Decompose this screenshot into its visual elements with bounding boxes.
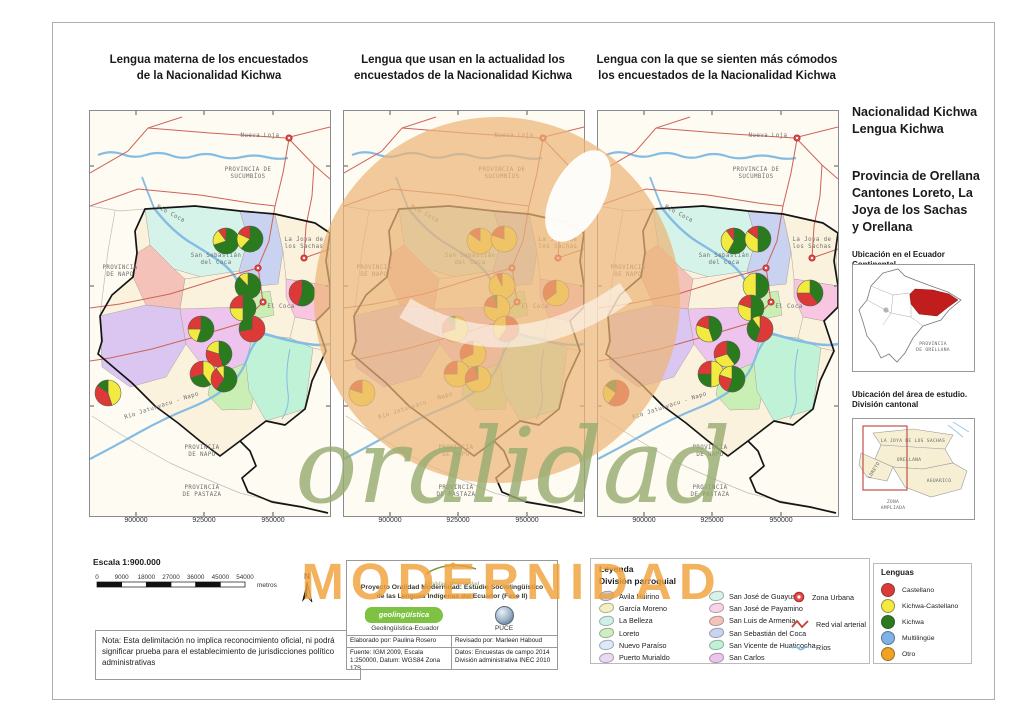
svg-text:PROVINCIA DESUCUMBÍOS: PROVINCIA DESUCUMBÍOS [733,167,780,180]
pie-chart [603,380,629,406]
svg-text:PROVINCIADE PASTAZA: PROVINCIADE PASTAZA [183,485,222,498]
red-vial-legend: Red vial arterial [791,619,866,629]
zona-urbana-label: Zona Urbana [812,593,854,602]
legend-item: La Belleza [599,615,670,627]
map-sheet: Lengua materna de los encuestados de la … [0,0,1024,724]
pie-chart [235,273,261,299]
legend-subtitle: División parroquial [599,576,676,586]
svg-text:PROVINCIADE NAPO: PROVINCIADE NAPO [184,445,219,458]
disclaimer-note: Nota: Esta delimitación no implica recon… [95,630,361,680]
credits-datos: Datos: Encuestas de campo 2014 División … [452,648,557,670]
parish-color-blob [598,652,614,664]
map2-title: Lengua que usan en la actualidad los enc… [320,52,606,84]
legend-item: Loreto [599,627,670,639]
credits-fuente: Fuente: IGM 2009, Escala 1:250000, Datum… [347,648,452,670]
map-panel-lengua-comodos: Nueva LojaPROVINCIA DESUCUMBÍOSRío CocaP… [597,110,839,517]
x-axis-label: 900000 [378,517,401,524]
parish-label: San Carlos [729,653,765,662]
x-axis-label: 925000 [446,517,469,524]
legend-title: Leyenda [599,564,634,574]
svg-text:El Coca: El Coca [775,304,802,310]
parish-color-blob [708,627,724,639]
sidebar-heading: Nacionalidad Kichwa Lengua Kichwa [852,104,1002,138]
map3-title: Lengua con la que se sienten más cómodos… [574,52,860,84]
pie-chart [745,226,771,252]
svg-text:PROVINCIADE PASTAZA: PROVINCIADE PASTAZA [437,485,476,498]
geolinguistica-logo: geolingüísticaecuador [365,607,443,623]
legend-item: Nuevo Paraíso [599,639,670,651]
parish-color-blob [598,590,614,602]
project-title: Proyecto Oralidad Modernidad: Estudio So… [347,583,557,601]
parish-color-blob [708,602,724,614]
svg-text:27000: 27000 [162,574,180,581]
rios-legend: Ríos [791,643,831,652]
parish-color-blob [708,639,724,651]
svg-text:18000: 18000 [138,574,156,581]
pie-chart [442,316,468,342]
svg-text:ORELLANA: ORELLANA [897,457,922,463]
pie-chart [543,280,569,306]
map-panel-lengua-actual: Nueva LojaPROVINCIA DESUCUMBÍOSRío CocaP… [343,110,585,517]
parish-label: García Moreno [619,604,667,613]
parish-color-blob [598,615,614,627]
svg-text:PROVINCIADE PASTAZA: PROVINCIADE PASTAZA [691,485,730,498]
map2-x-axis: 900000925000950000 [344,517,584,529]
svg-text:AGUARICO: AGUARICO [927,478,952,484]
language-color-dot [881,599,895,613]
svg-text:9000: 9000 [115,574,130,581]
north-arrow-icon: N [296,570,320,608]
svg-text:PROVINCIADE ORELLANA: PROVINCIADE ORELLANA [916,341,950,353]
credits-box: Oralidad Modernidad Proyecto Oralidad Mo… [346,560,558,670]
legend-item: San José de Payamino [709,602,816,614]
inset2-title: Ubicación del área de estudio. División … [852,390,987,411]
pie-chart [696,316,722,342]
parish-label: Puerto Murialdo [619,653,670,662]
language-color-dot [881,583,895,597]
x-axis-label: 900000 [632,517,655,524]
language-item: Kichwa [881,614,958,630]
svg-text:LA JOYA DE LOS SACHAS: LA JOYA DE LOS SACHAS [881,438,945,444]
pie-chart [719,366,745,392]
parish-color-blob [598,627,614,639]
pie-chart [211,366,237,392]
legend-item: García Moreno [599,602,670,614]
rios-label: Ríos [816,643,831,652]
pie-chart [213,228,239,254]
parish-color-blob [708,590,724,602]
svg-text:PROVINCIA DESUCUMBÍOS: PROVINCIA DESUCUMBÍOS [225,167,272,180]
rios-icon [791,644,809,652]
zona-urbana-icon [793,591,805,603]
red-vial-icon [791,619,809,629]
parish-label: San José de Guayusa [729,592,800,601]
parish-color-blob [708,615,724,627]
language-item: Multilingüe [881,630,958,646]
svg-text:PROVINCIADE NAPO: PROVINCIADE NAPO [692,445,727,458]
credits-elaborado: Elaborado por: Paulina Rosero [347,636,452,648]
languages-legend-box: Lenguas CastellanoKichwa-CastellanoKichw… [873,563,972,664]
language-item: Kichwa-Castellano [881,598,958,614]
pie-chart [743,273,769,299]
language-label: Castellano [902,587,934,594]
language-label: Multilingüe [902,635,935,642]
svg-text:metros: metros [257,582,278,589]
legend-item: Puerto Murialdo [599,651,670,663]
geolinguistica-caption: Geolingüística-Ecuador [355,625,455,632]
map-canvas-lengua-materna: Nueva LojaPROVINCIA DESUCUMBÍOSRío CocaP… [90,111,330,516]
parish-label: La Belleza [619,616,653,625]
svg-text:Nueva Loja: Nueva Loja [495,133,534,139]
language-label: Kichwa [902,619,924,626]
svg-text:0: 0 [95,574,99,581]
legend-item: San Carlos [709,651,816,663]
svg-text:PROVINCIA DESUCUMBÍOS: PROVINCIA DESUCUMBÍOS [479,167,526,180]
puce-caption: PUCE [475,625,533,632]
pie-chart [489,273,515,299]
map1-x-axis: 900000925000950000 [90,517,330,529]
language-item: Castellano [881,582,958,598]
scale-title: Escala 1:900.000 [93,557,161,567]
pie-chart [721,228,747,254]
parish-label: Nuevo Paraíso [619,641,667,650]
puce-logo [495,606,514,625]
language-item: Otro [881,646,958,662]
pie-chart [797,280,823,306]
pie-chart [95,380,121,406]
svg-text:La Joya delos Sachas: La Joya delos Sachas [285,237,324,250]
legend-box: Leyenda División parroquial Avila Huirin… [590,558,870,664]
legend-col-1: Avila HuirinoGarcía MorenoLa BellezaLore… [599,590,670,664]
parish-label: Avila Huirino [619,592,659,601]
svg-text:Nueva Loja: Nueva Loja [749,133,788,139]
pie-chart [491,226,517,252]
pie-chart [465,366,491,392]
x-axis-label: 925000 [192,517,215,524]
x-axis-label: 950000 [515,517,538,524]
svg-text:La Joya delos Sachas: La Joya delos Sachas [539,237,578,250]
map1-title: Lengua materna de los encuestados de la … [66,52,352,84]
pie-chart [239,316,265,342]
language-color-dot [881,647,895,661]
pie-chart [349,380,375,406]
language-label: Kichwa-Castellano [902,603,958,610]
credits-table: Elaborado por: Paulina Rosero Revisado p… [347,635,557,670]
pie-chart [493,316,519,342]
svg-text:45000: 45000 [212,574,230,581]
canton-inset-map: LA JOYA DE LOS SACHASORELLANALORETOAGUAR… [852,418,975,520]
parish-label: San Luis de Armenia [729,616,795,625]
svg-text:La Joya delos Sachas: La Joya delos Sachas [793,237,832,250]
credits-revisado: Revisado por: Marleen Haboud [452,636,557,648]
x-axis-label: 900000 [124,517,147,524]
svg-text:PROVINCIADE NAPO: PROVINCIADE NAPO [102,265,137,278]
parish-label: San Sebastián del Coca [729,629,806,638]
x-axis-label: 950000 [769,517,792,524]
legend-item: Avila Huirino [599,590,670,602]
pie-chart [467,228,493,254]
ecuador-inset-map: PROVINCIADE ORELLANA [852,264,975,372]
svg-text:El Coca: El Coca [521,304,548,310]
map-canvas-lengua-actual: Nueva LojaPROVINCIA DESUCUMBÍOSRío CocaP… [344,111,584,516]
svg-text:PROVINCIADE NAPO: PROVINCIADE NAPO [356,265,391,278]
parish-label: San José de Payamino [729,604,803,613]
svg-text:El Coca: El Coca [267,304,294,310]
parish-color-blob [598,639,614,651]
scale-bar: 090001800027000360004500054000metros [93,571,303,599]
map-canvas-lengua-comodos: Nueva LojaPROVINCIA DESUCUMBÍOSRío CocaP… [598,111,838,516]
language-color-dot [881,615,895,629]
svg-text:PROVINCIADE NAPO: PROVINCIADE NAPO [610,265,645,278]
map-panel-lengua-materna: Nueva LojaPROVINCIA DESUCUMBÍOSRío CocaP… [89,110,331,517]
sidebar-subheading: Provincia de Orellana Cantones Loreto, L… [852,168,1002,236]
parish-color-blob [708,652,724,664]
pie-chart [237,226,263,252]
pie-chart [188,316,214,342]
languages-legend-title: Lenguas [881,568,914,577]
map3-x-axis: 900000925000950000 [598,517,838,529]
zona-urbana-legend: Zona Urbana [793,591,854,603]
red-vial-label: Red vial arterial [816,620,866,629]
svg-text:ZONAAMPLIADA: ZONAAMPLIADA [881,499,906,511]
parish-color-blob [598,602,614,614]
pie-chart [747,316,773,342]
languages-legend-items: CastellanoKichwa-CastellanoKichwaMultili… [881,582,958,662]
language-label: Otro [902,651,915,658]
svg-text:36000: 36000 [187,574,205,581]
ecuador-map-canvas: PROVINCIADE ORELLANA [853,265,974,371]
svg-text:PROVINCIADE NAPO: PROVINCIADE NAPO [438,445,473,458]
x-axis-label: 925000 [700,517,723,524]
svg-text:54000: 54000 [236,574,254,581]
svg-text:N: N [304,572,310,581]
pie-chart [289,280,315,306]
canton-map-canvas: LA JOYA DE LOS SACHASORELLANALORETOAGUAR… [853,419,974,519]
language-color-dot [881,631,895,645]
svg-text:Nueva Loja: Nueva Loja [241,133,280,139]
parish-label: Loreto [619,629,639,638]
x-axis-label: 950000 [261,517,284,524]
